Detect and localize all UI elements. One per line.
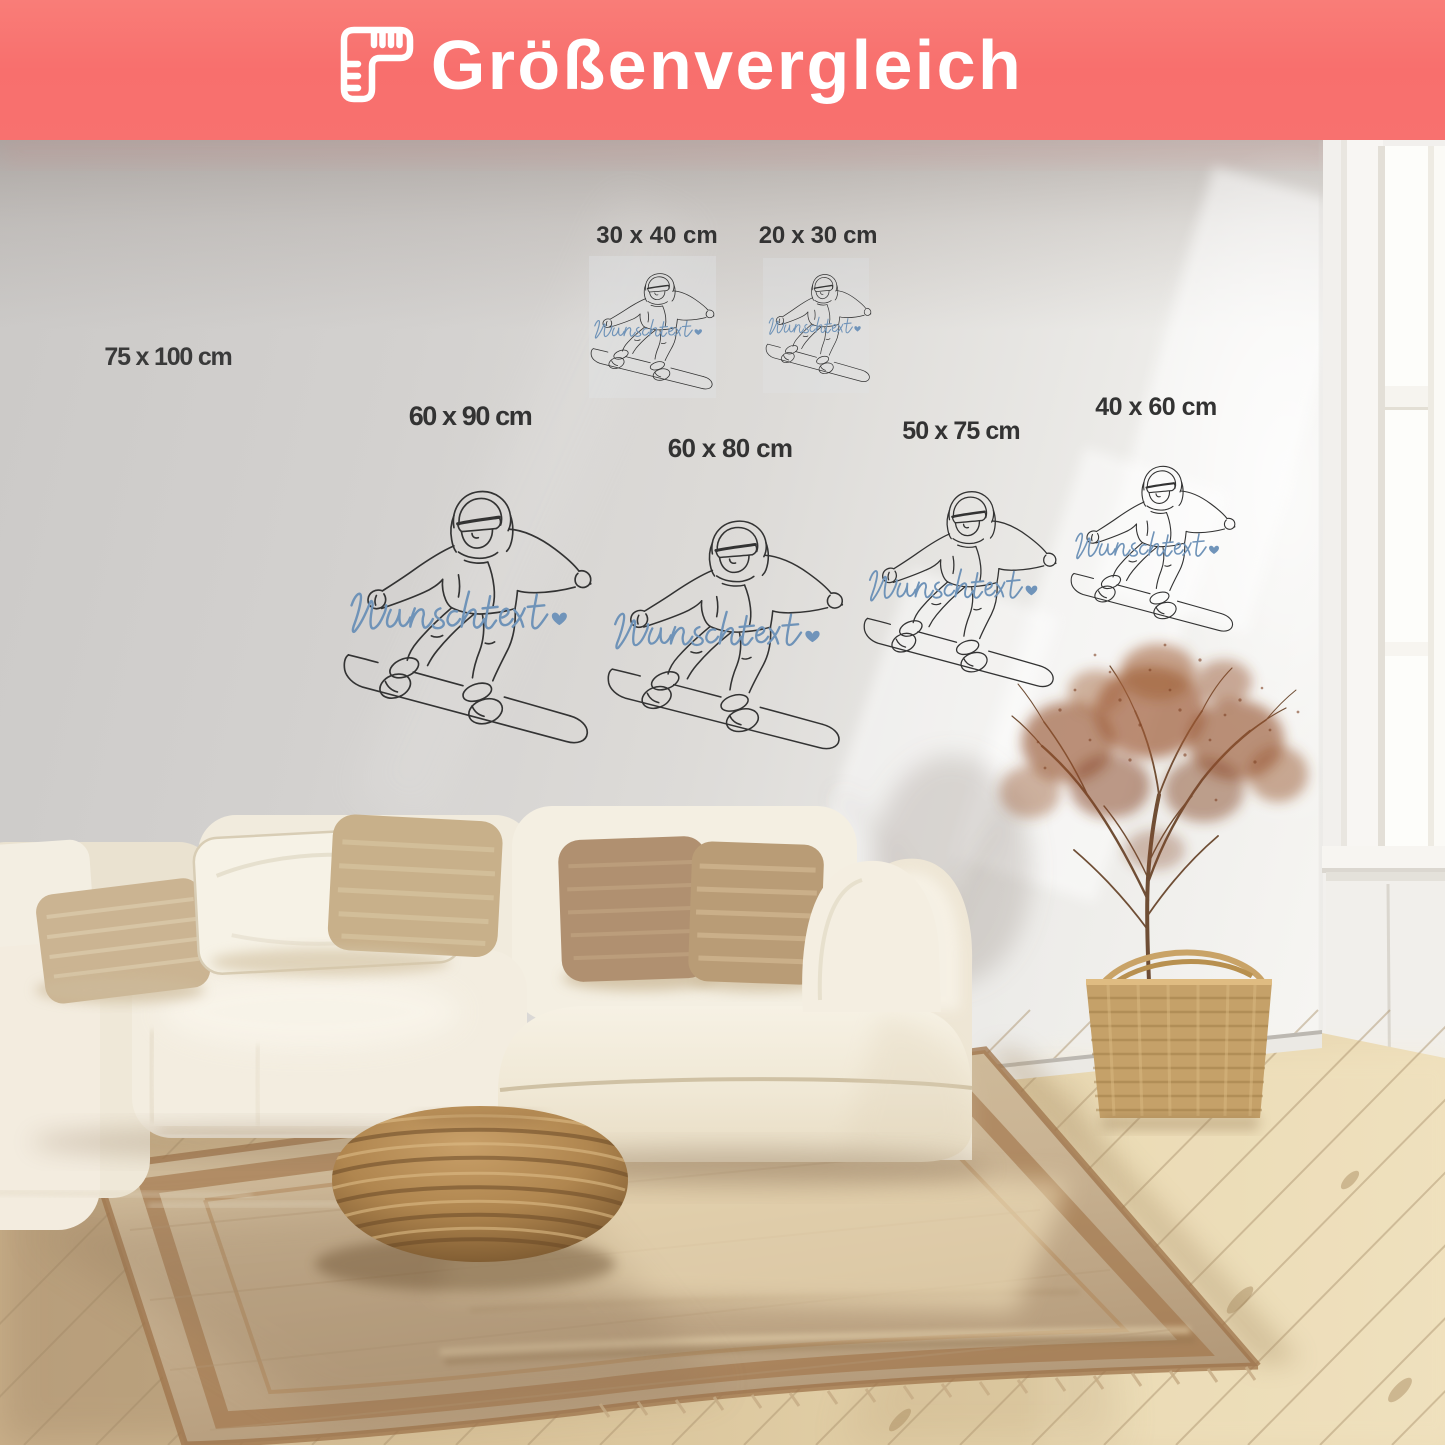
svg-text:Größenvergleich: Größenvergleich: [431, 26, 1023, 104]
svg-text:20 x 30 cm: 20 x 30 cm: [759, 222, 877, 249]
svg-text:50 x 75 cm: 50 x 75 cm: [902, 417, 1020, 445]
svg-text:60 x 90 cm: 60 x 90 cm: [409, 401, 532, 431]
svg-text:60 x 80 cm: 60 x 80 cm: [668, 433, 793, 463]
svg-text:30 x 40 cm: 30 x 40 cm: [596, 222, 717, 249]
svg-text:75 x 100 cm: 75 x 100 cm: [104, 343, 231, 371]
svg-text:40 x 60 cm: 40 x 60 cm: [1095, 393, 1217, 421]
